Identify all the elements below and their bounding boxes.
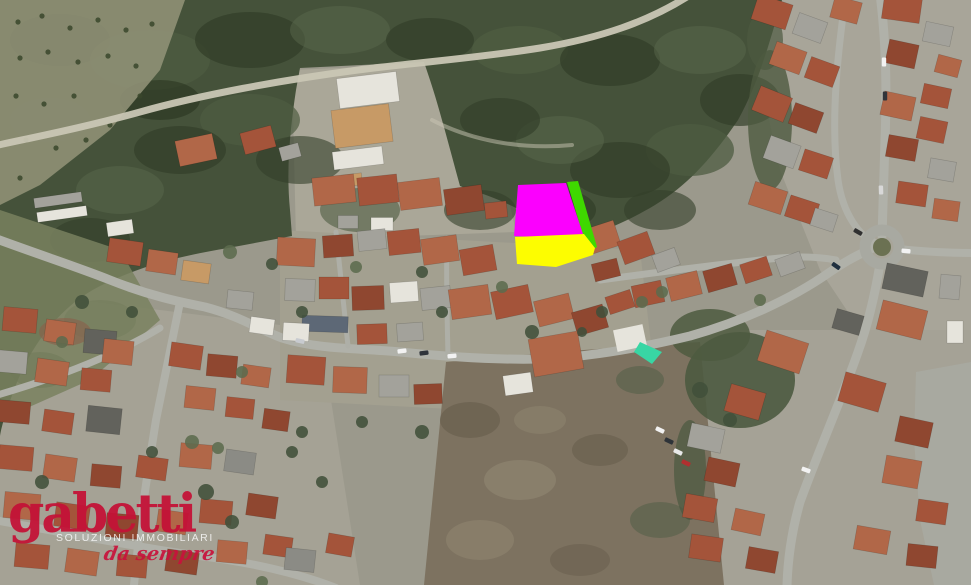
car — [901, 248, 910, 253]
tree — [266, 258, 278, 270]
tree — [225, 515, 239, 529]
building — [528, 331, 584, 377]
olive-tree — [45, 49, 50, 54]
tree — [286, 446, 298, 458]
building — [53, 502, 90, 530]
building — [184, 385, 216, 410]
field-blob — [440, 402, 500, 438]
building — [90, 464, 122, 489]
building — [312, 174, 357, 206]
car — [882, 58, 886, 67]
building — [0, 400, 31, 425]
tree — [636, 296, 648, 308]
building — [420, 285, 452, 310]
tree — [296, 306, 308, 318]
canopy-blob — [290, 6, 390, 54]
olive-tree — [83, 137, 88, 142]
tree — [146, 446, 158, 458]
building — [34, 358, 69, 386]
olive-tree — [53, 145, 58, 150]
olive-tree — [17, 175, 22, 180]
tree — [198, 484, 214, 500]
olive-tree — [149, 21, 154, 26]
listing-satellite-image: gabetti SOLUZIONI IMMOBILIARI da sempre — [0, 0, 971, 585]
building — [927, 158, 956, 182]
building — [225, 397, 255, 420]
tree — [723, 413, 737, 427]
olive-tree — [133, 63, 138, 68]
olive-tree — [67, 25, 72, 30]
building — [682, 493, 718, 522]
building — [352, 285, 385, 310]
building — [932, 198, 961, 221]
building — [459, 244, 497, 276]
building — [181, 260, 212, 284]
olive-tree — [15, 19, 20, 24]
building — [116, 554, 148, 579]
tree — [436, 306, 448, 318]
canopy-blob — [624, 190, 696, 230]
building — [284, 547, 316, 572]
building — [947, 321, 963, 343]
building — [106, 238, 143, 266]
tree — [350, 261, 362, 273]
tree — [56, 336, 68, 348]
building — [906, 543, 938, 568]
building — [105, 513, 139, 540]
building — [102, 338, 134, 365]
building — [688, 534, 723, 562]
building — [80, 368, 112, 393]
olive-tree — [17, 55, 22, 60]
tree — [416, 266, 428, 278]
building — [165, 549, 200, 575]
building — [0, 445, 34, 472]
building — [896, 181, 929, 207]
canopy-blob — [654, 26, 746, 74]
building — [387, 228, 421, 255]
field-blob — [446, 520, 514, 560]
building — [224, 449, 257, 475]
building — [42, 454, 77, 482]
building — [286, 355, 326, 386]
olive-tree — [39, 13, 44, 18]
building — [338, 216, 358, 229]
building — [484, 201, 508, 219]
building — [42, 409, 75, 435]
building — [216, 540, 248, 565]
tree — [35, 475, 49, 489]
tree — [692, 382, 708, 398]
building — [226, 290, 254, 311]
olive-tree — [105, 53, 110, 58]
canopy-blob — [195, 12, 305, 68]
tree — [212, 442, 224, 454]
building — [371, 218, 393, 231]
building — [3, 491, 41, 520]
building — [325, 533, 354, 557]
building — [885, 135, 918, 162]
building — [916, 499, 949, 525]
tree — [236, 366, 248, 378]
tree — [656, 286, 668, 298]
tree — [577, 327, 587, 337]
building — [322, 234, 353, 258]
building — [168, 342, 203, 370]
building — [357, 323, 388, 344]
building — [64, 548, 99, 576]
tree — [356, 416, 368, 428]
building — [156, 509, 189, 535]
olive-tree — [13, 93, 18, 98]
tree — [525, 325, 539, 339]
tree — [75, 295, 89, 309]
tree — [596, 306, 608, 318]
field-blob — [484, 460, 556, 500]
canopy-blob — [76, 166, 164, 214]
building — [333, 366, 368, 393]
building — [249, 316, 275, 335]
tree — [754, 294, 766, 306]
building — [86, 405, 123, 434]
building — [389, 281, 418, 303]
building — [882, 455, 922, 489]
building — [420, 235, 459, 266]
olive-tree — [95, 17, 100, 22]
olive-tree — [123, 27, 128, 32]
olive-tree — [137, 93, 142, 98]
car — [883, 92, 887, 101]
building — [262, 408, 291, 431]
tree — [185, 435, 199, 449]
building — [745, 547, 778, 574]
tree — [223, 245, 237, 259]
tree — [496, 281, 508, 293]
building — [397, 178, 442, 211]
building — [2, 307, 38, 334]
building — [443, 184, 484, 215]
vegetation-patch — [748, 50, 792, 190]
field-blob — [572, 434, 628, 466]
tree — [316, 476, 328, 488]
building — [331, 104, 393, 149]
building — [246, 493, 279, 519]
olive-tree — [75, 59, 80, 64]
tree — [415, 425, 429, 439]
car — [447, 353, 456, 358]
building — [14, 543, 50, 570]
building — [146, 249, 179, 275]
satellite-map — [0, 0, 971, 585]
building — [136, 455, 169, 481]
building — [448, 284, 492, 319]
building — [285, 278, 316, 301]
field-blob — [550, 544, 610, 576]
building — [357, 229, 387, 252]
building — [396, 322, 423, 342]
field-blob — [514, 406, 566, 434]
tree — [126, 306, 138, 318]
olive-tree — [41, 101, 46, 106]
olive-tree — [71, 93, 76, 98]
building — [276, 237, 315, 267]
building — [319, 277, 349, 299]
building — [939, 274, 961, 300]
building — [357, 174, 400, 206]
field-blob — [616, 366, 664, 394]
building — [379, 375, 409, 397]
building — [414, 384, 443, 405]
car — [879, 185, 884, 194]
tree — [296, 426, 308, 438]
roundabout-island — [873, 238, 891, 256]
building — [206, 354, 238, 379]
building — [503, 372, 534, 396]
building — [0, 350, 28, 375]
